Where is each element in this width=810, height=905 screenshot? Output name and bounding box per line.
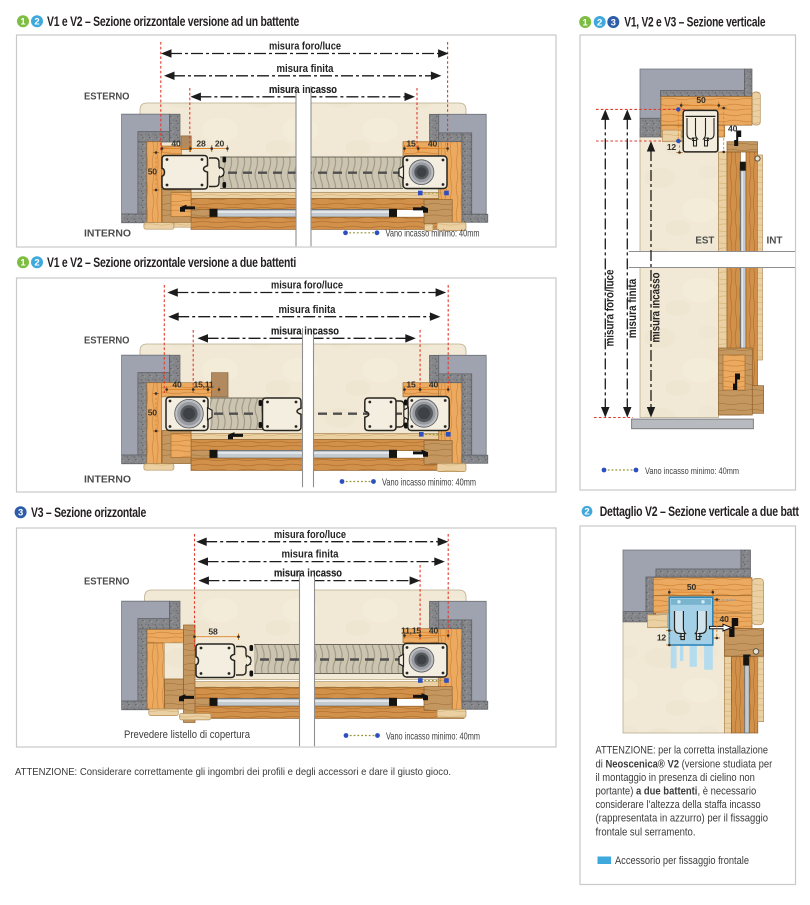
svg-text:misura incasso: misura incasso [271,325,339,337]
svg-text:Vano incasso minimo: 40mm: Vano incasso minimo: 40mm [645,466,739,477]
svg-text:di Neoscenica® V2 (versione st: di Neoscenica® V2 (versione studiata per [596,758,773,770]
svg-text:EST: EST [695,235,715,247]
svg-text:misura finita: misura finita [277,63,335,75]
svg-text:V3 – Sezione orizzontale: V3 – Sezione orizzontale [31,505,146,520]
svg-text:11,15: 11,15 [401,625,421,635]
svg-text:Dettaglio V2 – Sezione vertica: Dettaglio V2 – Sezione verticale a due b… [600,504,800,519]
svg-text:15,11: 15,11 [193,379,213,389]
svg-text:misura foro/luce: misura foro/luce [269,41,341,53]
svg-text:misura incasso: misura incasso [651,273,663,343]
svg-text:Accessorio per fissaggio front: Accessorio per fissaggio frontale [615,855,749,867]
svg-text:3: 3 [611,17,616,28]
svg-text:il montaggio in presenza di ci: il montaggio in presenza di cielino non [596,772,755,784]
svg-text:2: 2 [34,17,39,28]
svg-text:misura incasso: misura incasso [274,568,342,580]
svg-text:Vano incasso minimo: 40mm: Vano incasso minimo: 40mm [382,477,476,488]
svg-text:V1, V2 e V3 – Sezione vertical: V1, V2 e V3 – Sezione verticale [624,14,765,29]
svg-text:50: 50 [148,167,158,177]
svg-text:misura foro/luce: misura foro/luce [274,529,346,541]
svg-text:misura finita: misura finita [279,304,337,316]
svg-text:frontale sul serramento.: frontale sul serramento. [596,826,696,838]
svg-text:V1 e V2 – Sezione orizzontale: V1 e V2 – Sezione orizzontale versione a… [47,255,296,270]
svg-text:misura finita: misura finita [627,278,639,338]
svg-text:Vano incasso minimo: 40mm: Vano incasso minimo: 40mm [386,229,480,240]
svg-text:Vano incasso minimo: 40mm: Vano incasso minimo: 40mm [386,731,480,742]
svg-text:ATTENZIONE: per la corretta in: ATTENZIONE: per la corretta installazion… [596,745,769,757]
svg-text:15: 15 [406,138,416,148]
svg-text:portante) a due battenti, è ne: portante) a due battenti, è necessario [596,786,757,798]
svg-text:misura foro/luce: misura foro/luce [271,280,343,292]
svg-text:misura incasso: misura incasso [269,84,337,96]
svg-text:40: 40 [172,379,182,389]
svg-text:Prevedere listello di copertur: Prevedere listello di copertura [124,729,250,741]
svg-text:3: 3 [18,508,23,519]
svg-text:15: 15 [406,379,416,389]
svg-text:40: 40 [728,124,738,134]
svg-text:1: 1 [583,17,589,28]
svg-text:2: 2 [597,17,602,28]
svg-text:ESTERNO: ESTERNO [84,91,130,103]
svg-text:40: 40 [428,138,438,148]
svg-text:2: 2 [34,258,39,269]
svg-text:1: 1 [20,258,26,269]
svg-text:40: 40 [171,138,181,148]
svg-text:misura finita: misura finita [282,549,340,561]
svg-text:misura foro/luce: misura foro/luce [605,270,617,347]
svg-text:50: 50 [687,582,697,592]
svg-text:50: 50 [148,408,158,418]
svg-text:50: 50 [696,95,706,105]
svg-text:INT: INT [767,235,784,247]
svg-text:V1 e V2 – Sezione orizzontale: V1 e V2 – Sezione orizzontale versione a… [47,14,299,29]
svg-text:40: 40 [429,379,439,389]
svg-text:ESTERNO: ESTERNO [84,576,130,588]
svg-text:considerare l’altezza della st: considerare l’altezza della staffa incas… [596,799,761,811]
svg-text:2: 2 [584,507,589,518]
svg-text:12: 12 [657,633,667,643]
svg-text:INTERNO: INTERNO [84,228,131,240]
svg-text:28: 28 [196,138,206,148]
svg-text:40: 40 [429,625,439,635]
svg-text:ESTERNO: ESTERNO [84,335,130,347]
svg-text:40: 40 [720,614,730,624]
svg-text:ATTENZIONE: Considerare corret: ATTENZIONE: Considerare correttamente gl… [15,767,451,778]
svg-text:58: 58 [208,627,218,637]
svg-text:(rappresentata in azzurro) per: (rappresentata in azzurro) per il fissag… [596,813,769,825]
svg-text:INTERNO: INTERNO [84,474,131,486]
svg-text:1: 1 [20,17,26,28]
svg-text:12: 12 [667,142,677,152]
svg-text:20: 20 [215,138,225,148]
